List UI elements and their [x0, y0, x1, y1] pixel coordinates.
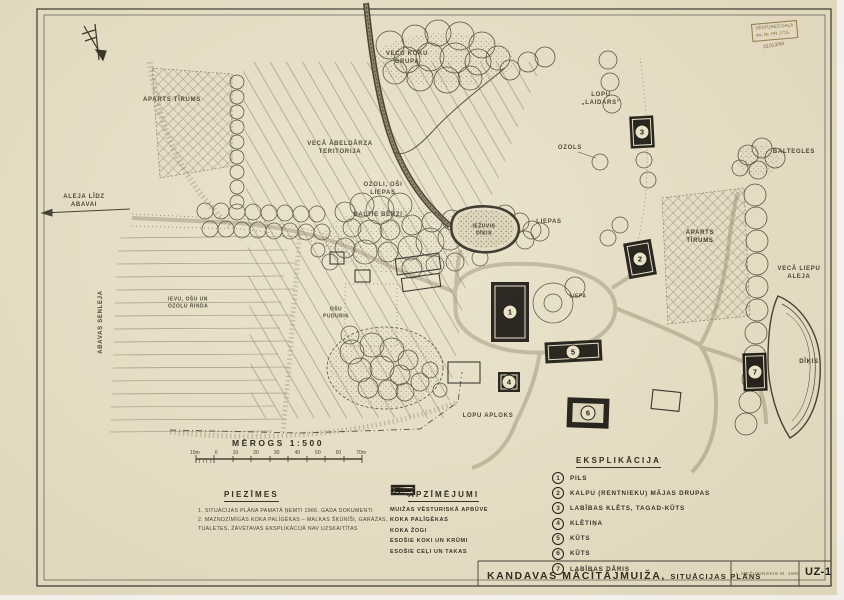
- sheet-number: UZ-1: [805, 566, 831, 578]
- label-white-birches: BALTIE BĒRZI: [353, 211, 402, 219]
- label-field-right: APARTS TĪRUMS: [686, 229, 714, 245]
- building-marker-1: 1: [503, 305, 518, 320]
- scale-tick: 50: [315, 450, 321, 456]
- scale-bar: [196, 455, 362, 463]
- scanned-site-plan-sheet: APARTS TĪRUMS VECU KOKU GRUPA VECĀ ĀBELD…: [0, 0, 844, 600]
- pond-right: [768, 296, 820, 438]
- building-marker-2: 2: [633, 252, 648, 267]
- sheet-credit: I. MEŽURINSKIS M. 1966: [736, 572, 800, 577]
- oak-leader-line: [578, 152, 596, 158]
- explication-item: 1PILS: [552, 472, 767, 484]
- legend-label: ESOŠIE CEĻI UN TAKAS: [390, 549, 467, 555]
- explication-item: 6KŪTS: [552, 548, 767, 560]
- legend-heading: APZĪMĒJUMI: [408, 490, 479, 502]
- legend-item: KOKA PALĪGĒKAS: [390, 517, 550, 523]
- label-cattle-paddock: LOPU APLOKS: [463, 412, 514, 420]
- legend-item: ESOŠIE CEĻI UN TAKAS: [390, 549, 550, 555]
- legend-label: KOKA ŽOGI: [390, 528, 427, 534]
- building-marker-7: 7: [748, 365, 763, 380]
- scale-tick: 60: [336, 450, 342, 456]
- paper-edge-bottom: [0, 595, 844, 600]
- explication-item: 4KLĒTIŅA: [552, 518, 767, 530]
- label-white-firs: BALTEGLES: [773, 148, 815, 156]
- legend-item: KOKA ŽOGI: [390, 528, 550, 534]
- north-arrow-icon: [82, 24, 106, 60]
- field-right: [662, 188, 750, 324]
- abava-arrow: [42, 209, 130, 216]
- scale-tick: 10: [233, 450, 239, 456]
- scale-tick: 70m: [356, 450, 366, 456]
- label-field-left: APARTS TĪRUMS: [143, 96, 201, 104]
- label-lindens: LIEPAS: [536, 218, 561, 226]
- note-item-1: 1. SITUĀCIJAS PLĀNA PAMATĀ ŅEMTI 1966. G…: [198, 507, 398, 516]
- explication-heading: EKSPLIKĀCIJA: [576, 456, 661, 468]
- explication-item: 5KŪTS: [552, 533, 767, 545]
- explication-label: KŪTS: [570, 535, 590, 542]
- label-linden: LIEPA: [570, 294, 587, 301]
- note-item-2: 2. MAZNOZĪMĪGĀS KOKA PALĪGĒKAS – MALKAS …: [198, 516, 398, 534]
- paper-edge-right: [837, 0, 844, 600]
- archive-stamp: VĒSTURES DAĻA inv. Nr. PR 1715 31013/96: [751, 20, 799, 50]
- notes-heading: PIEZĪMES: [224, 490, 279, 502]
- scale-tick: 20: [253, 450, 259, 456]
- explication-label: PILS: [570, 475, 587, 482]
- label-pond: DĪĶIS: [799, 358, 819, 366]
- label-cattle-yard: LOPU „LAIDARS”: [582, 91, 621, 107]
- title-block: KANDAVAS MĀCĪTĀJMUIŽA, SITUĀCIJAS PLĀNS: [487, 566, 762, 584]
- explication-panel: EKSPLIKĀCIJA 1PILS 2KALPU (RENTNIEKU) MĀ…: [552, 450, 767, 575]
- explication-num: 5: [552, 533, 564, 545]
- scale-title: MĒROGS 1:500: [190, 438, 366, 448]
- label-alley-to-abava: ALEJA LĪDZ ABAVAI: [63, 193, 104, 209]
- building-marker-3: 3: [635, 125, 650, 140]
- sheet-title: KANDAVAS MĀCĪTĀJMUIŽA,: [487, 570, 666, 582]
- label-tree-row: IEVU, OŠU UN OZOLU RINDA: [168, 296, 208, 310]
- explication-label: KŪTS: [570, 550, 590, 557]
- explication-item: 2KALPU (RENTNIEKU) MĀJAS DRUPAS: [552, 487, 767, 499]
- field-left: [152, 68, 232, 178]
- label-ash-grove: OŠU PUDURIS: [323, 306, 349, 320]
- notes-panel: PIEZĪMES 1. SITUĀCIJAS PLĀNA PAMATĀ ŅEMT…: [198, 484, 398, 534]
- explication-num: 6: [552, 548, 564, 560]
- legend-label: ESOŠIE KOKI UN KRŪMI: [390, 538, 468, 544]
- building-marker-5: 5: [566, 345, 581, 360]
- legend-item: ESOŠIE KOKI UN KRŪMI: [390, 538, 550, 544]
- legend-label: KOKA PALĪGĒKAS: [390, 517, 448, 523]
- legend-label: MUIŽAS VĒSTURISKĀ APBŪVE: [390, 507, 488, 513]
- building-marker-4: 4: [502, 375, 517, 390]
- legend-item: MUIŽAS VĒSTURISKĀ APBŪVE: [390, 507, 550, 513]
- explication-num: 1: [552, 472, 564, 484]
- scale-tick: 10m: [190, 450, 200, 456]
- scale-panel: MĒROGS 1:500 10m 0 10 20 30 40 50 60 70m: [190, 438, 366, 456]
- explication-num: 4: [552, 518, 564, 530]
- scale-tick: 40: [294, 450, 300, 456]
- explication-num: 3: [552, 502, 564, 514]
- label-old-linden-alley: VECĀ LIEPU ALEJA: [777, 265, 820, 281]
- scale-tick: 0: [215, 450, 218, 456]
- label-oaks-ashes: OZOLI, OŠI LIEPAS: [363, 181, 402, 197]
- explication-item: 3LABĪBAS KLĒTS, TAGAD-KŪTS: [552, 502, 767, 514]
- scale-tick: 30: [274, 450, 280, 456]
- label-abava-valley: ABAVAS SENLEJA: [97, 290, 105, 354]
- building-marker-6: 6: [581, 406, 596, 421]
- roads-paths-icon: [390, 484, 416, 496]
- label-oak: OZOLS: [558, 144, 582, 152]
- label-orchard: VECĀ ĀBELDĀRZA TERITORIJA: [307, 140, 372, 156]
- label-old-tree-group: VECU KOKU GRUPA: [386, 50, 428, 66]
- explication-num: 2: [552, 487, 564, 499]
- scale-tick-labels: 10m 0 10 20 30 40 50 60 70m: [190, 450, 366, 456]
- explication-label: KALPU (RENTNIEKU) MĀJAS DRUPAS: [570, 490, 710, 497]
- explication-label: LABĪBAS KLĒTS, TAGAD-KŪTS: [570, 505, 685, 512]
- explication-label: KLĒTIŅA: [570, 520, 603, 527]
- label-dried-pond: IEŽUVIS DĪĶIS: [473, 223, 496, 237]
- legend-panel: APZĪMĒJUMI MUIŽAS VĒSTURISKĀ APBŪVE KOKA…: [390, 484, 550, 555]
